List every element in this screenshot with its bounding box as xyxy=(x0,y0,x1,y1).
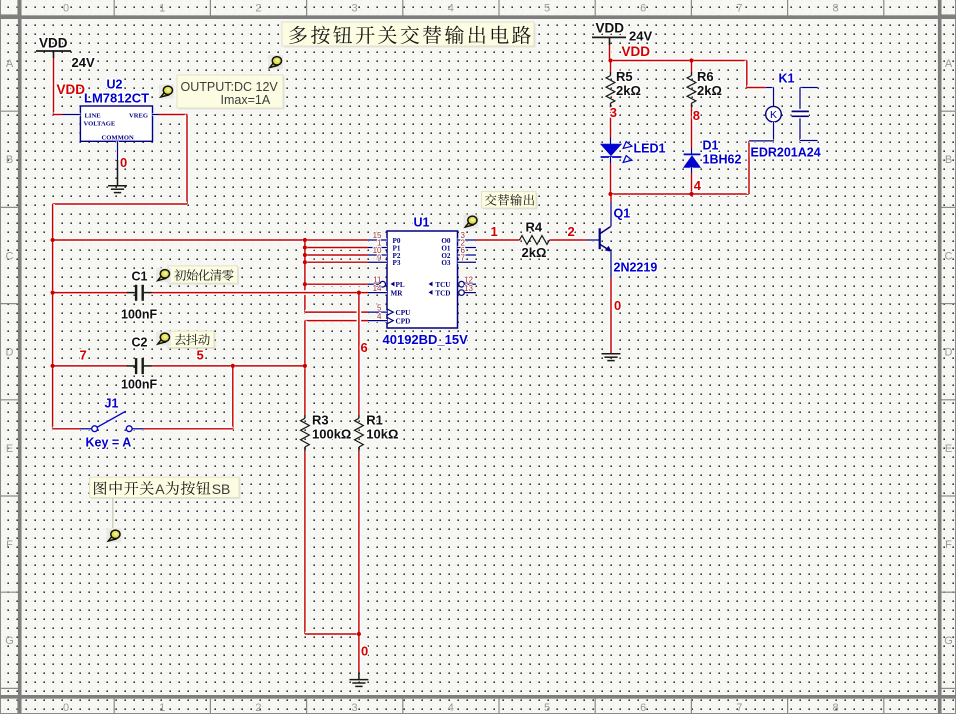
svg-text:A: A xyxy=(6,58,14,70)
svg-text:C1: C1 xyxy=(132,270,148,284)
svg-text:PL: PL xyxy=(396,281,405,289)
svg-text:TCD: TCD xyxy=(435,289,450,297)
svg-text:7: 7 xyxy=(461,253,466,262)
svg-text:7: 7 xyxy=(736,3,742,15)
svg-text:VREG: VREG xyxy=(129,113,148,120)
svg-text:R3: R3 xyxy=(312,413,329,428)
svg-text:E: E xyxy=(6,443,13,455)
svg-text:0: 0 xyxy=(120,155,127,170)
svg-text:J1: J1 xyxy=(105,397,119,411)
svg-text:A: A xyxy=(945,58,953,70)
svg-text:VDD: VDD xyxy=(57,82,86,97)
svg-text:OUTPUT:DC 12V: OUTPUT:DC 12V xyxy=(181,80,279,94)
svg-text:G: G xyxy=(944,635,953,647)
svg-text:7: 7 xyxy=(736,702,742,714)
svg-text:VDD: VDD xyxy=(622,44,651,59)
svg-text:9: 9 xyxy=(377,253,382,262)
svg-text:O3: O3 xyxy=(441,259,451,267)
svg-text:14: 14 xyxy=(373,284,382,293)
svg-text:8: 8 xyxy=(693,108,700,123)
svg-text:F: F xyxy=(6,539,13,551)
svg-text:MR: MR xyxy=(391,289,404,297)
svg-text:Key = A: Key = A xyxy=(86,436,132,450)
svg-text:C: C xyxy=(6,250,14,262)
svg-text:2kΩ: 2kΩ xyxy=(697,83,722,98)
svg-text:B: B xyxy=(945,154,952,166)
svg-text:B: B xyxy=(6,154,13,166)
svg-text:D: D xyxy=(6,347,14,359)
svg-text:100kΩ: 100kΩ xyxy=(312,427,351,442)
svg-text:2kΩ: 2kΩ xyxy=(522,245,547,260)
svg-text:10kΩ: 10kΩ xyxy=(366,427,398,442)
svg-text:24V: 24V xyxy=(72,55,95,70)
svg-text:100nF: 100nF xyxy=(121,308,157,322)
svg-text:U1: U1 xyxy=(414,216,430,230)
svg-text:R4: R4 xyxy=(526,220,543,235)
svg-text:0: 0 xyxy=(63,702,69,714)
svg-text:6: 6 xyxy=(640,702,646,714)
svg-text:E: E xyxy=(945,443,952,455)
svg-text:VDD: VDD xyxy=(39,36,68,51)
svg-text:0: 0 xyxy=(63,3,69,15)
svg-text:TCU: TCU xyxy=(435,281,451,289)
svg-text:P3: P3 xyxy=(393,259,401,267)
svg-text:1: 1 xyxy=(159,3,165,15)
svg-text:C: C xyxy=(945,250,953,262)
svg-text:4: 4 xyxy=(694,178,702,193)
svg-text:0: 0 xyxy=(361,644,368,659)
svg-text:2: 2 xyxy=(255,702,261,714)
svg-text:0: 0 xyxy=(614,298,621,313)
svg-text:LM7812CT: LM7812CT xyxy=(84,91,149,106)
svg-text:3: 3 xyxy=(352,3,358,15)
svg-text:24V: 24V xyxy=(629,29,652,44)
svg-text:VDD: VDD xyxy=(596,21,625,36)
svg-text:LED1: LED1 xyxy=(634,142,666,156)
svg-text:C2: C2 xyxy=(132,336,148,350)
svg-text:4: 4 xyxy=(448,3,454,15)
svg-text:4: 4 xyxy=(448,702,454,714)
svg-text:R6: R6 xyxy=(697,69,714,84)
svg-text:R1: R1 xyxy=(366,413,383,428)
svg-text:K: K xyxy=(770,109,777,121)
svg-text:K1: K1 xyxy=(779,72,795,86)
svg-text:5: 5 xyxy=(544,3,550,15)
svg-text:A: A xyxy=(155,481,165,497)
svg-text:F: F xyxy=(945,539,952,551)
svg-text:Q1: Q1 xyxy=(614,207,631,221)
svg-text:R5: R5 xyxy=(616,69,633,84)
svg-text:3: 3 xyxy=(610,105,617,120)
svg-text:6: 6 xyxy=(361,340,368,355)
svg-text:2: 2 xyxy=(255,3,261,15)
svg-text:8: 8 xyxy=(833,3,839,15)
svg-text:EDR201A24: EDR201A24 xyxy=(751,146,821,160)
svg-text:3: 3 xyxy=(352,702,358,714)
svg-text:1: 1 xyxy=(491,224,498,239)
svg-text:D: D xyxy=(945,347,953,359)
svg-text:Imax=1A: Imax=1A xyxy=(221,93,271,107)
svg-text:2N2219: 2N2219 xyxy=(614,261,658,275)
svg-text:5: 5 xyxy=(544,702,550,714)
svg-text:SB: SB xyxy=(212,481,231,497)
svg-text:CPD: CPD xyxy=(396,317,411,325)
svg-text:6: 6 xyxy=(640,3,646,15)
svg-text:2kΩ: 2kΩ xyxy=(616,83,641,98)
svg-text:CPU: CPU xyxy=(396,309,412,317)
svg-text:D1: D1 xyxy=(703,139,719,153)
svg-text:100nF: 100nF xyxy=(121,378,157,392)
svg-text:40192BD_15V: 40192BD_15V xyxy=(383,332,469,347)
svg-text:LINE: LINE xyxy=(85,113,102,120)
svg-text:G: G xyxy=(5,635,14,647)
svg-text:2: 2 xyxy=(568,224,575,239)
svg-text:1BH62: 1BH62 xyxy=(703,153,742,167)
svg-text:COMMON: COMMON xyxy=(102,135,134,142)
svg-text:1: 1 xyxy=(159,702,165,714)
svg-text:5: 5 xyxy=(197,348,204,363)
svg-text:4: 4 xyxy=(377,312,382,321)
svg-text:13: 13 xyxy=(464,284,473,293)
svg-text:U2: U2 xyxy=(107,78,123,92)
svg-text:VOLTAGE: VOLTAGE xyxy=(84,121,116,128)
svg-text:7: 7 xyxy=(80,348,87,363)
svg-text:8: 8 xyxy=(833,702,839,714)
